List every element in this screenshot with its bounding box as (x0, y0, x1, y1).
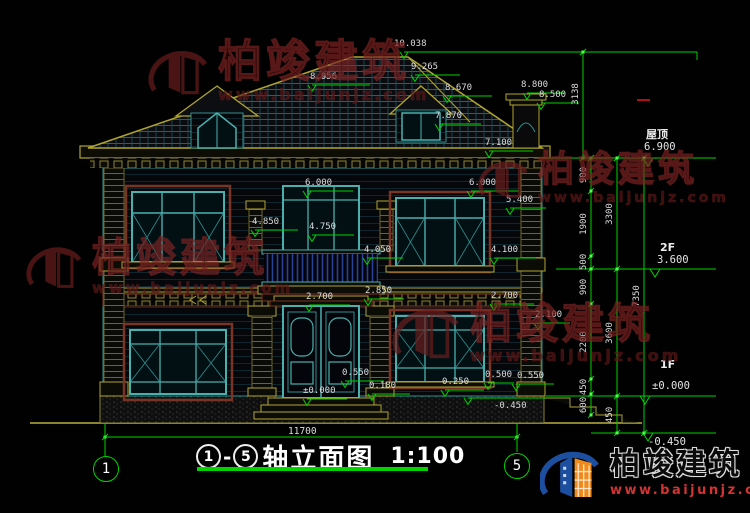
vdim-a1: 900 (579, 167, 589, 183)
dim-label-balcony_rail: 4.850 (252, 217, 279, 227)
dim-label-parapet_right: 5.400 (506, 195, 533, 205)
logo-building-icon (540, 445, 602, 503)
logo-brand: 柏竣建筑 (610, 450, 742, 480)
hdim-total: 11700 (288, 426, 317, 437)
dim-label-eave_right: 7.100 (485, 138, 512, 148)
dim-label-ground_center: ±0.000 (303, 386, 336, 396)
level-2f-label: 2F (660, 241, 675, 254)
axis-bubble-1: 1 (102, 461, 110, 477)
dim-label-sill1_right2: 0.550 (517, 371, 544, 381)
dim-label-roof_peak: 10.038 (394, 39, 427, 49)
dim-label-porch_mid: -0.450 (494, 401, 527, 411)
vdim-total: 7350 (632, 285, 642, 307)
title-underline (197, 467, 428, 471)
dim-label-roof_upper: 9.265 (411, 62, 438, 72)
dim-label-dormer_win: 7.870 (435, 111, 462, 121)
level-1f-value: ±0.000 (652, 380, 690, 392)
dim-label-roof_mid: 8.670 (445, 83, 472, 93)
vdim-a3: 500 (579, 254, 589, 270)
vdim-a4: 900 (579, 279, 589, 295)
vdim-a5: 2200 (579, 331, 589, 353)
dim-label-eave2_left: 6.000 (305, 178, 332, 188)
title-dash: - (223, 445, 231, 469)
dim-label-porch_right: 0.250 (442, 377, 469, 387)
dim-label-win1_top_right: 2.700 (491, 291, 518, 301)
dim-label-sill1_left: 0.550 (342, 368, 369, 378)
dim-label-balcony_door: 4.750 (309, 222, 336, 232)
logo-url: www.baijunjz.com (610, 483, 750, 498)
level-1f-label: 1F (660, 358, 675, 371)
vdim-a2: 1900 (579, 213, 589, 235)
dim-label-chimney_top: 8.800 (521, 80, 548, 90)
title-axis-end: 5 (233, 444, 258, 469)
vdim-top: 3138 (571, 83, 581, 105)
vdim-a6: 450 (579, 379, 589, 395)
dim-label-sill2_right: 4.100 (491, 245, 518, 255)
dim-label-balcony_floor: 4.050 (364, 245, 391, 255)
vdim-b3: 450 (605, 407, 615, 423)
vdim-b1: 3300 (605, 203, 615, 225)
dim-label-door_top: 2.700 (306, 292, 333, 302)
title-axis-start: 1 (196, 444, 221, 469)
level-roof-label: 屋顶 (646, 126, 668, 142)
dim-label-sill1_right: 0.500 (485, 370, 512, 380)
dim-label-chimney_cap: 8.500 (539, 90, 566, 100)
level-2f-value: 3.600 (657, 254, 689, 266)
dim-label-win1_right: 2.100 (535, 310, 562, 320)
brand-logo: 柏竣建筑 www.baijunjz.com (540, 445, 750, 503)
cad-canvas: 10.0389.2658.9568.6707.8708.8008.5007.10… (0, 0, 750, 513)
dim-label-step_left: 0.180 (369, 381, 396, 391)
axis-bubble-5: 5 (513, 458, 521, 474)
vdim-a7: 600 (579, 397, 589, 413)
level-roof-value: 6.900 (644, 141, 676, 153)
dimension-lines (0, 0, 750, 513)
title-scale: 1:100 (390, 444, 465, 469)
dim-label-roof_left: 8.956 (310, 72, 337, 82)
dim-label-eave2_right: 6.000 (469, 178, 496, 188)
dim-label-band_mid: 2.850 (365, 286, 392, 296)
vdim-b2: 3600 (605, 322, 615, 344)
